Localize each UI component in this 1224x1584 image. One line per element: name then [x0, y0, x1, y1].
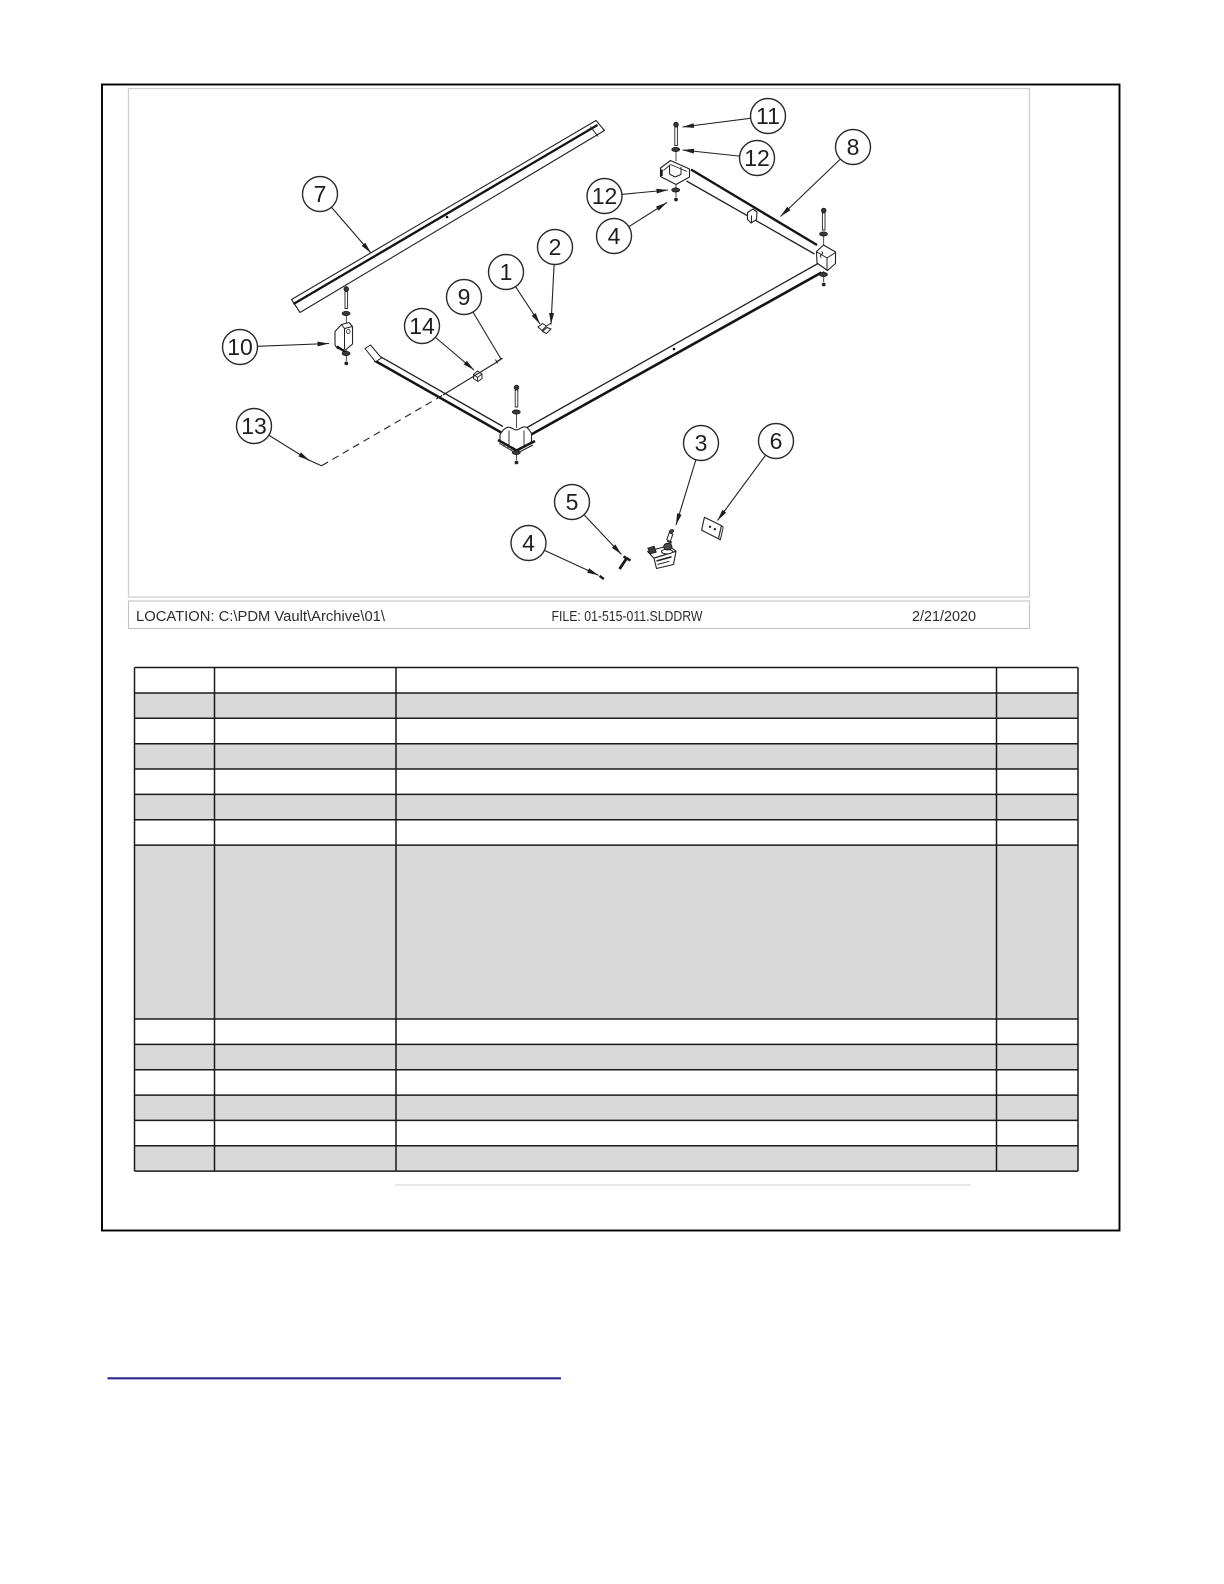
svg-text:12: 12: [744, 145, 770, 171]
svg-text:7: 7: [314, 181, 327, 207]
svg-text:14: 14: [409, 313, 435, 339]
svg-text:5: 5: [566, 489, 579, 515]
svg-text:4: 4: [522, 530, 535, 556]
svg-text:1: 1: [500, 259, 513, 285]
svg-text:13: 13: [241, 413, 267, 439]
svg-text:6: 6: [770, 428, 783, 454]
svg-text:3: 3: [695, 430, 708, 456]
svg-text:9: 9: [458, 284, 471, 310]
svg-text:10: 10: [227, 334, 253, 360]
svg-text:12: 12: [592, 183, 618, 209]
svg-text:8: 8: [847, 134, 860, 160]
svg-text:4: 4: [608, 223, 621, 249]
svg-text:11: 11: [756, 103, 780, 129]
svg-text:LOCATION: C:\PDM Vault\Archive: LOCATION: C:\PDM Vault\Archive\01\: [136, 609, 386, 625]
svg-text:2: 2: [549, 234, 562, 260]
svg-text:2/21/2020: 2/21/2020: [912, 609, 976, 625]
svg-text:FILE: 01-515-011.SLDDRW: FILE: 01-515-011.SLDDRW: [552, 609, 703, 625]
